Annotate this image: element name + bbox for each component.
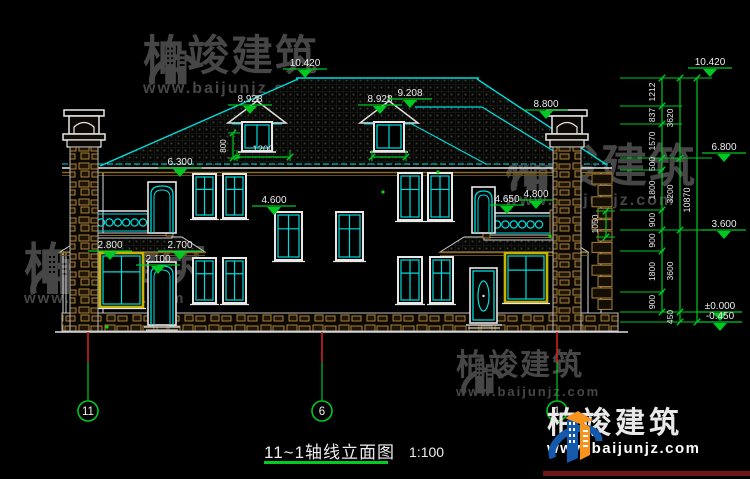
arched-door xyxy=(148,262,176,325)
dim-total: 10870 xyxy=(682,187,692,212)
main-roof-surface xyxy=(100,79,607,166)
elevation-value: 4.650 xyxy=(494,194,519,205)
dormer-width-dim: 1200 xyxy=(252,144,273,155)
grip-dot xyxy=(436,170,439,173)
logo-building-icon xyxy=(543,408,605,470)
dim-value: 3600 xyxy=(665,261,675,280)
dim-value: 1570 xyxy=(647,131,657,150)
dormer-height-dim: 800 xyxy=(219,139,228,153)
baluster xyxy=(123,219,130,226)
elevation-value: 6.800 xyxy=(711,142,736,153)
chimney-cap-top xyxy=(64,110,104,116)
door-knob xyxy=(482,295,484,297)
elevation-value: -0.450 xyxy=(706,311,735,322)
quoin-block xyxy=(592,288,612,298)
baluster xyxy=(519,221,526,228)
baluster xyxy=(139,219,146,226)
logo-underline-bar xyxy=(543,471,750,476)
dim-value: 900 xyxy=(647,233,657,247)
elevation-value: 10.420 xyxy=(695,57,726,68)
quoin-block xyxy=(598,231,612,241)
dim-value: 1800 xyxy=(647,180,657,199)
elevation-value: 4.600 xyxy=(261,195,286,206)
axis-bubbles: 1161 xyxy=(78,332,567,421)
dim-value: 3620 xyxy=(665,108,675,127)
chimney-shaft xyxy=(70,147,98,331)
baluster xyxy=(106,219,113,226)
elevation-triangle xyxy=(298,70,312,78)
grip-dot xyxy=(548,234,551,237)
dim-value: 900 xyxy=(647,213,657,227)
company-logo: 柏竣建筑 www.baijunjz.com xyxy=(543,408,700,457)
drawing-title-block: 11~1轴线立面图1:100 xyxy=(264,438,444,463)
dim-value: 1800 xyxy=(647,262,657,281)
elevation-value: 2.700 xyxy=(167,240,192,251)
chimney-neck xyxy=(67,140,101,147)
quoin-block xyxy=(598,277,612,287)
dim-value: 500 xyxy=(647,157,657,171)
building-structure xyxy=(55,78,628,332)
elevation-triangle xyxy=(713,323,727,331)
balcony-height-dim: 1050 xyxy=(590,214,600,233)
drawing-scale: 1:100 xyxy=(409,444,444,460)
elevation-triangle xyxy=(717,154,731,162)
elevation-triangle xyxy=(717,231,731,239)
chimney-cap-top xyxy=(547,110,587,116)
elevation-value: 2.800 xyxy=(97,240,122,251)
quoin-block xyxy=(592,265,612,275)
quoin-block xyxy=(592,242,612,252)
quoin-block xyxy=(598,208,612,218)
chimney-neck xyxy=(550,140,584,147)
chimney-corbel xyxy=(546,134,588,140)
grip-dot xyxy=(381,190,384,193)
drawing-title: 11~1轴线立面图 xyxy=(264,438,395,463)
elevation-value: 4.800 xyxy=(523,189,548,200)
dim-value: 3200 xyxy=(665,184,675,203)
elevation-value: 10.420 xyxy=(290,58,321,69)
title-underline xyxy=(264,461,388,464)
elevation-value: 6.300 xyxy=(167,157,192,168)
grip-dot xyxy=(105,325,108,328)
axis-number: 6 xyxy=(319,406,325,418)
elevation-value: 8.800 xyxy=(533,99,558,110)
stone-base-band xyxy=(62,313,618,331)
baluster xyxy=(527,221,534,228)
axis-number: 11 xyxy=(82,406,94,418)
dim-value: 1212 xyxy=(647,82,657,101)
dim-value: 900 xyxy=(647,295,657,309)
quoin-block xyxy=(598,254,612,264)
quoin-block xyxy=(598,299,612,309)
elevation-value: 3.600 xyxy=(711,219,736,230)
cad-elevation-screenshot: 柏竣建筑www.baijunjz.com 柏竣建筑www.baijunjz.co… xyxy=(0,0,750,479)
dim-value: 450 xyxy=(665,310,675,324)
quoin-block xyxy=(598,185,612,195)
baluster xyxy=(114,219,121,226)
baluster xyxy=(131,219,138,226)
chimney-shaft xyxy=(553,147,581,331)
elevation-value: 9.208 xyxy=(397,88,422,99)
baluster xyxy=(510,221,517,228)
quoin-block xyxy=(592,197,612,207)
elevation-triangle xyxy=(529,201,543,209)
elevation-triangle xyxy=(703,69,717,77)
baluster xyxy=(535,221,542,228)
elevation-value: 8.928 xyxy=(237,94,262,105)
baluster xyxy=(502,221,509,228)
dim-value: 837 xyxy=(647,108,657,122)
elevation-value: 2.100 xyxy=(145,254,170,265)
quoin-block xyxy=(592,174,612,184)
chimney-corbel xyxy=(63,134,105,140)
